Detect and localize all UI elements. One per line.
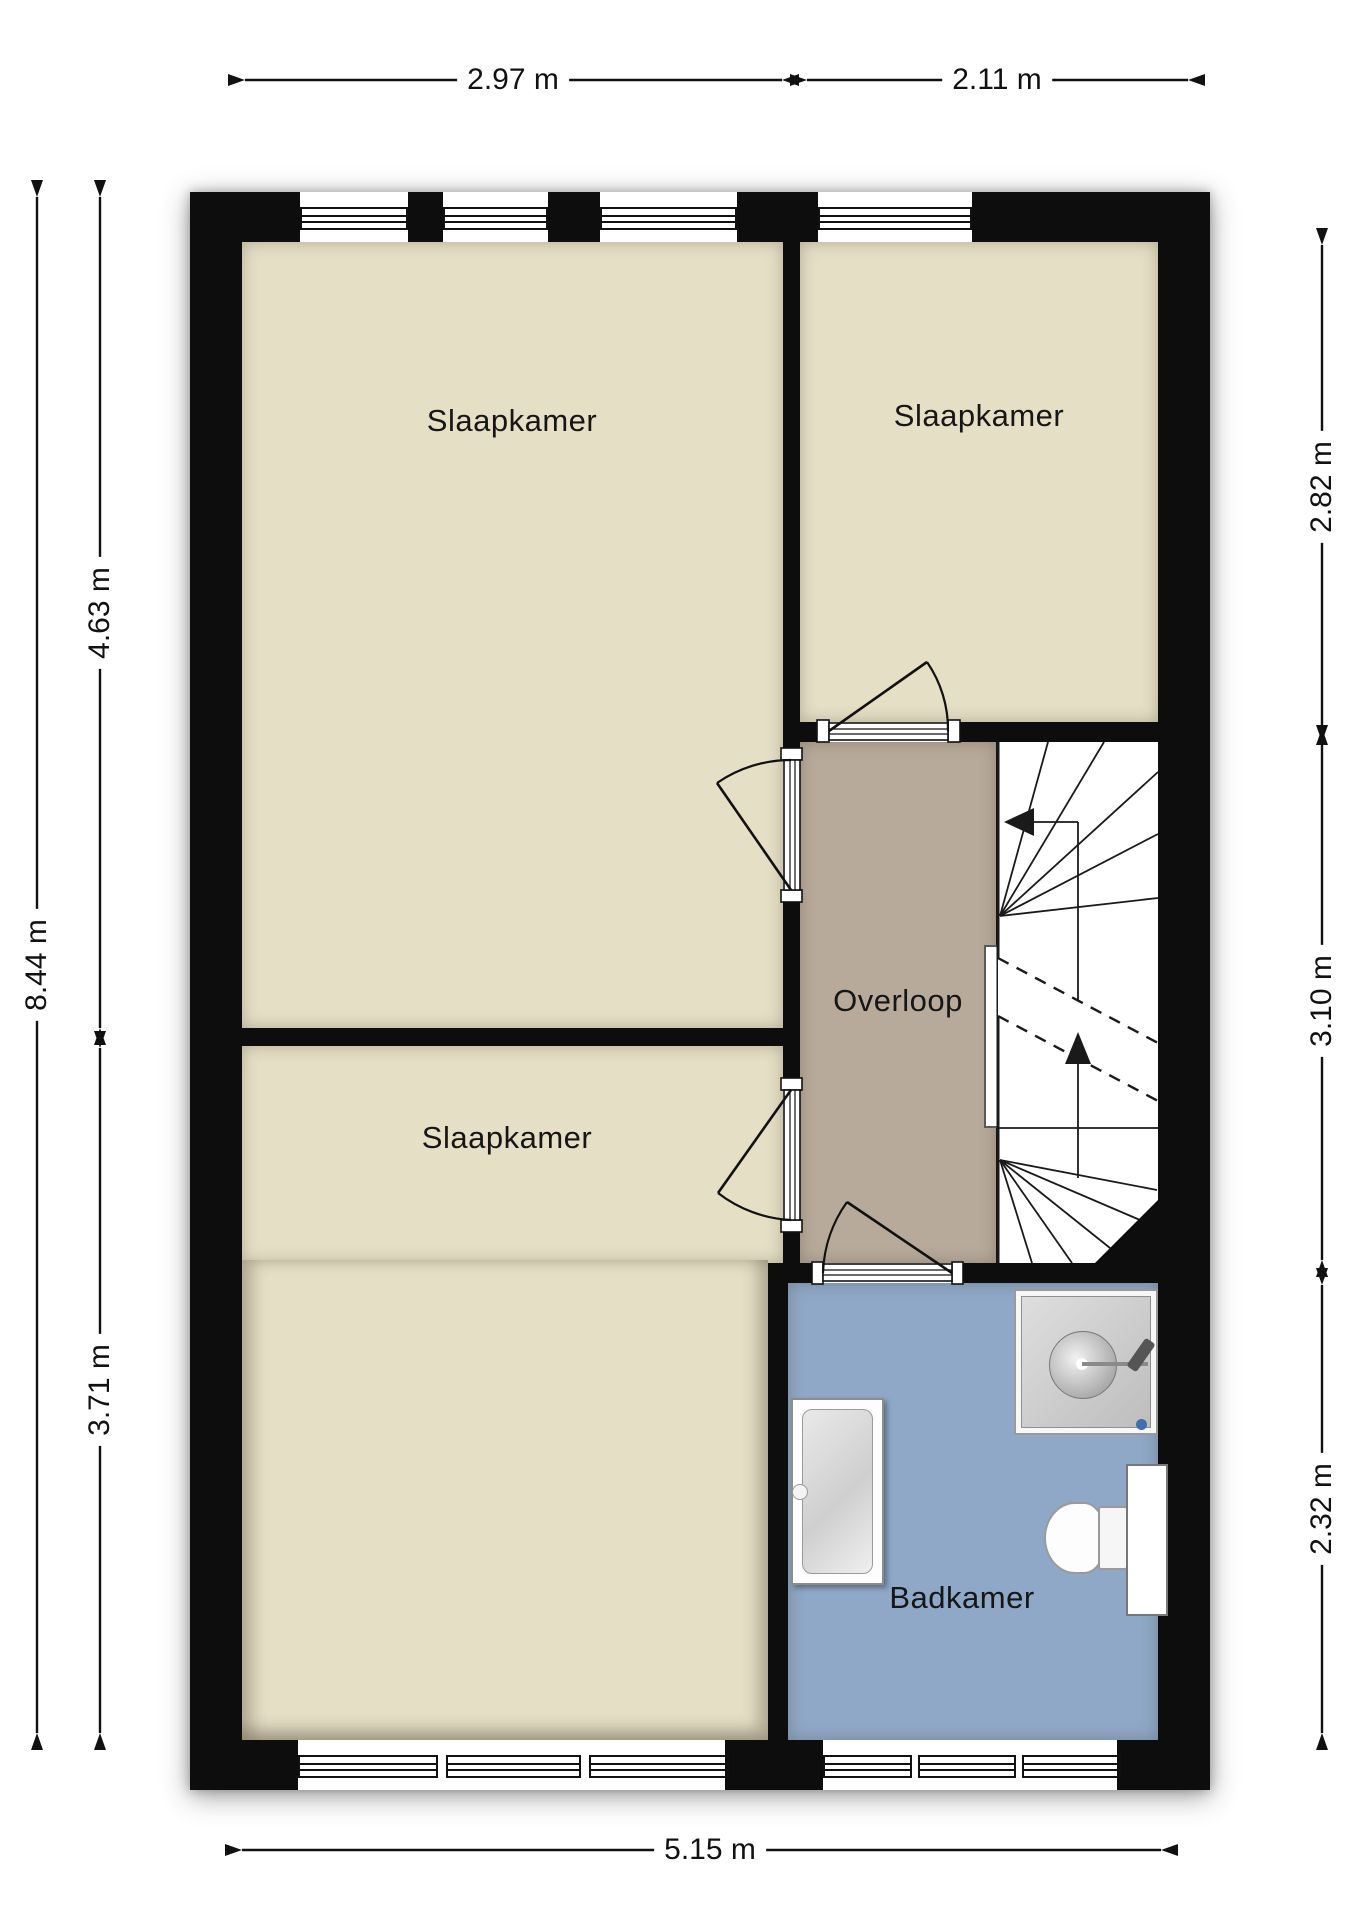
window-top-2 [443,192,548,242]
wall-bedrooms-horizontal [242,1028,783,1046]
dim-right-middle: 3.10 m [1304,945,1340,1057]
dim-right-lower: 2.32 m [1304,1453,1340,1565]
dim-left-total: 8.44 m [19,909,55,1021]
dim-right-upper: 2.82 m [1304,431,1340,543]
wall-center-vertical-upper [783,242,800,748]
shower-drain-dot [1136,1419,1147,1430]
dim-left-lower: 3.71 m [82,1334,118,1446]
floorplan-canvas: Slaapkamer Slaapkamer Slaapkamer Overloo… [0,0,1358,1920]
dim-left-upper: 4.63 m [82,557,118,669]
wall-bath-top-a [768,1263,812,1283]
bathtub-basin [802,1409,873,1574]
wall-bath-left [768,1283,788,1740]
toilet-bowl [1044,1502,1106,1574]
room-slaapkamer-top-left [242,242,783,1028]
window-top-3 [600,192,737,242]
room-label-slaapkamer-top-right: Slaapkamer [894,398,1064,434]
window-bottom-bath [823,1740,1117,1790]
wall-topright-bottom-b [960,722,1158,742]
shower [1014,1289,1158,1435]
room-label-slaapkamer-top-left: Slaapkamer [427,403,597,439]
room-slaapkamer-top-right [800,242,1158,722]
toilet-cistern [1098,1506,1128,1570]
bathtub [791,1398,884,1585]
room-label-badkamer: Badkamer [889,1580,1034,1616]
room-label-slaapkamer-bottom-left: Slaapkamer [422,1120,592,1156]
window-top-4 [818,192,972,242]
dim-bottom: 5.15 m [654,1832,766,1868]
wall-topright-bottom-a [800,722,817,742]
wall-center-vertical-low [783,1232,800,1265]
room-label-overloop: Overloop [833,983,963,1019]
window-top-1 [300,192,408,242]
stairs-railing [984,945,1000,1128]
bathtub-faucet-icon [792,1484,808,1500]
dim-top-right: 2.11 m [942,62,1052,98]
window-bottom-left [298,1740,725,1790]
room-slaapkamer-bottom-left-lower [242,1260,768,1740]
bathroom-cabinet [1126,1464,1168,1616]
wall-bath-top-b [963,1263,1158,1283]
dim-top-left: 2.97 m [457,62,569,98]
wall-center-vertical-mid [783,902,800,1078]
wall-left [190,192,242,1790]
